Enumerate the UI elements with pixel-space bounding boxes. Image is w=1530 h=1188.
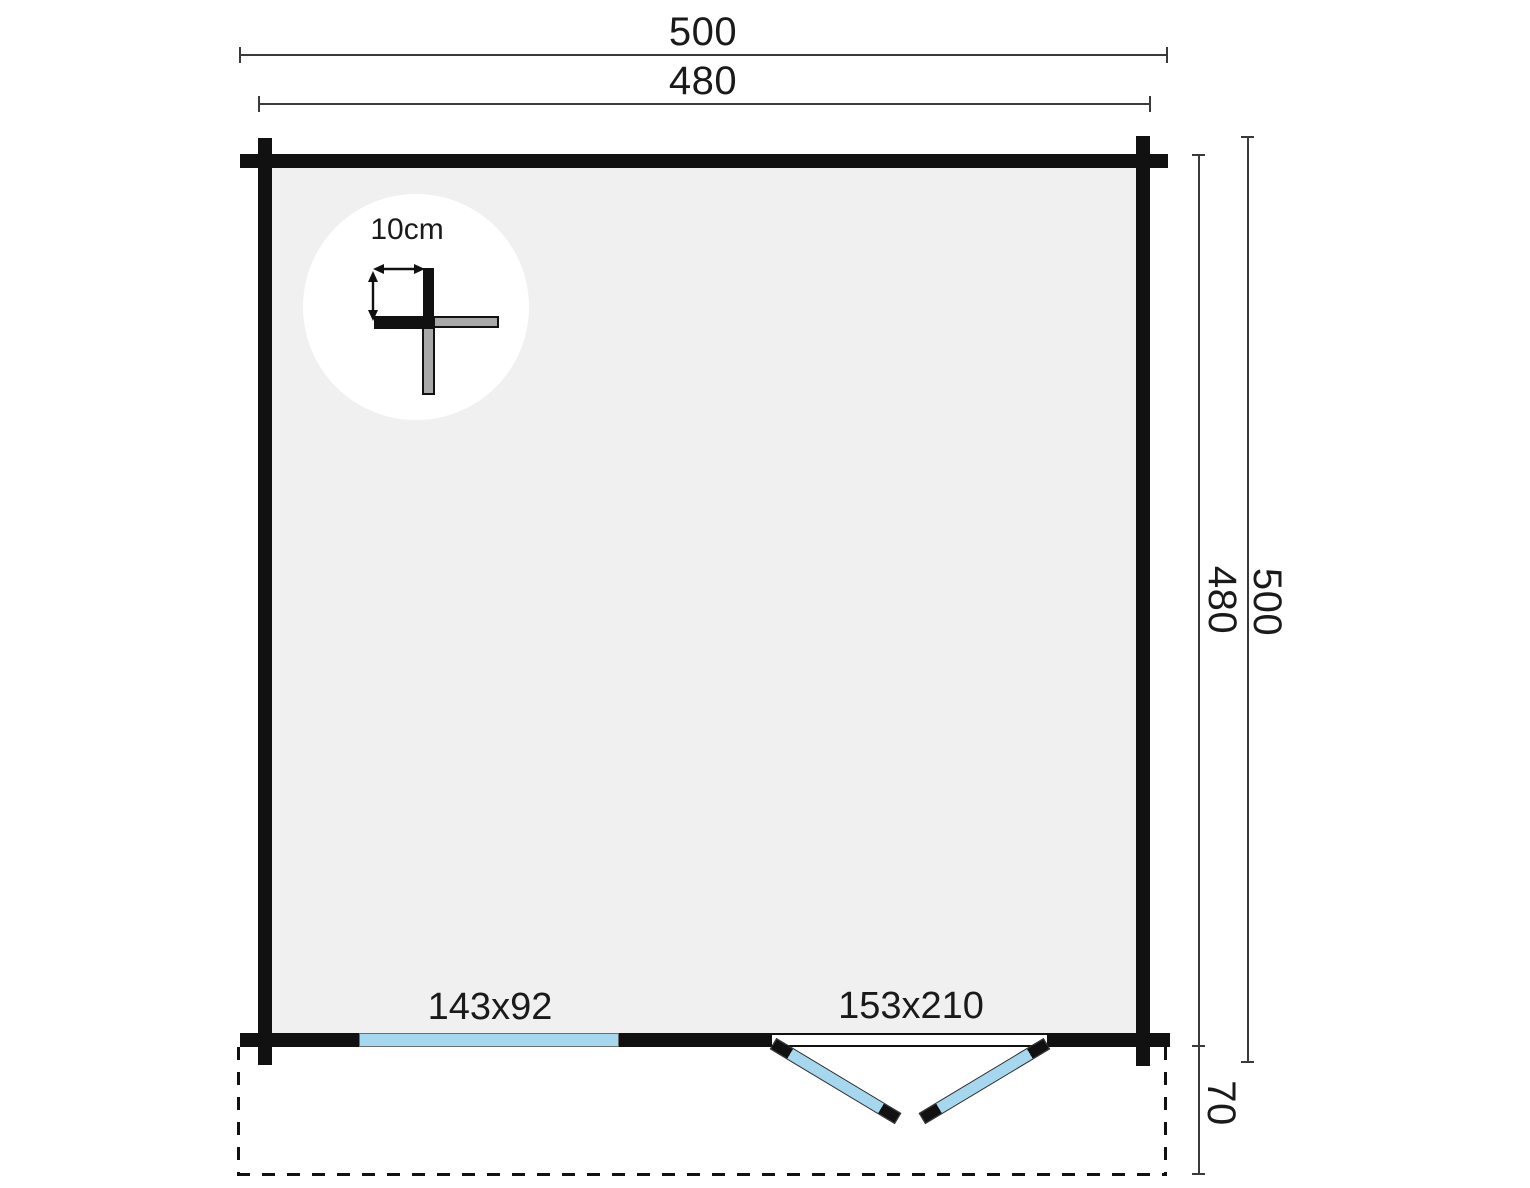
- wall-right: [1136, 136, 1150, 1066]
- wall-height-tick-mid: [1192, 1045, 1205, 1047]
- overall-width-dim-line: [240, 54, 1168, 56]
- terrace-dash-left: [237, 1047, 240, 1176]
- wall-width-dim-line: [259, 103, 1151, 105]
- detail-circle: 10cm: [303, 194, 529, 420]
- wall-height-label: 480: [1202, 566, 1242, 634]
- terrace-dash-bottom: [237, 1173, 1167, 1176]
- wall-width-label: 480: [669, 61, 737, 101]
- overall-height-tick-bottom: [1241, 1061, 1254, 1063]
- door-opening: [770, 1033, 1049, 1047]
- wall-width-tick-right: [1149, 96, 1151, 112]
- terrace-depth-label: 70: [1201, 1080, 1241, 1126]
- floor-plan: 500 480 480 70 500 10cm: [0, 0, 1530, 1188]
- terrace-dash-right: [1164, 1047, 1167, 1176]
- wall-top: [240, 154, 1168, 168]
- log-cross-horizontal-gray: [433, 316, 499, 328]
- window-size-label: 143x92: [428, 988, 553, 1026]
- width-arrow-icon: [373, 262, 425, 276]
- wall-height-tick-top: [1192, 154, 1205, 156]
- overall-height-label: 500: [1247, 568, 1287, 636]
- door-leaf-left: [770, 1038, 902, 1124]
- wall-height-dim-line: [1198, 155, 1200, 1175]
- log-thickness-label: 10cm: [370, 215, 443, 245]
- height-arrow-icon: [366, 271, 380, 321]
- log-cross-vertical-gray: [422, 327, 435, 395]
- door-leaf-right: [919, 1038, 1051, 1124]
- terrace-depth-tick-bottom: [1192, 1173, 1205, 1175]
- overall-height-tick-top: [1241, 136, 1254, 138]
- overall-width-label: 500: [669, 12, 737, 52]
- wall-width-tick-left: [258, 96, 260, 112]
- wall-left: [258, 138, 272, 1065]
- overall-width-tick-right: [1166, 47, 1168, 63]
- window: [359, 1033, 619, 1047]
- door-size-label: 153x210: [838, 987, 984, 1025]
- overall-width-tick-left: [239, 47, 241, 63]
